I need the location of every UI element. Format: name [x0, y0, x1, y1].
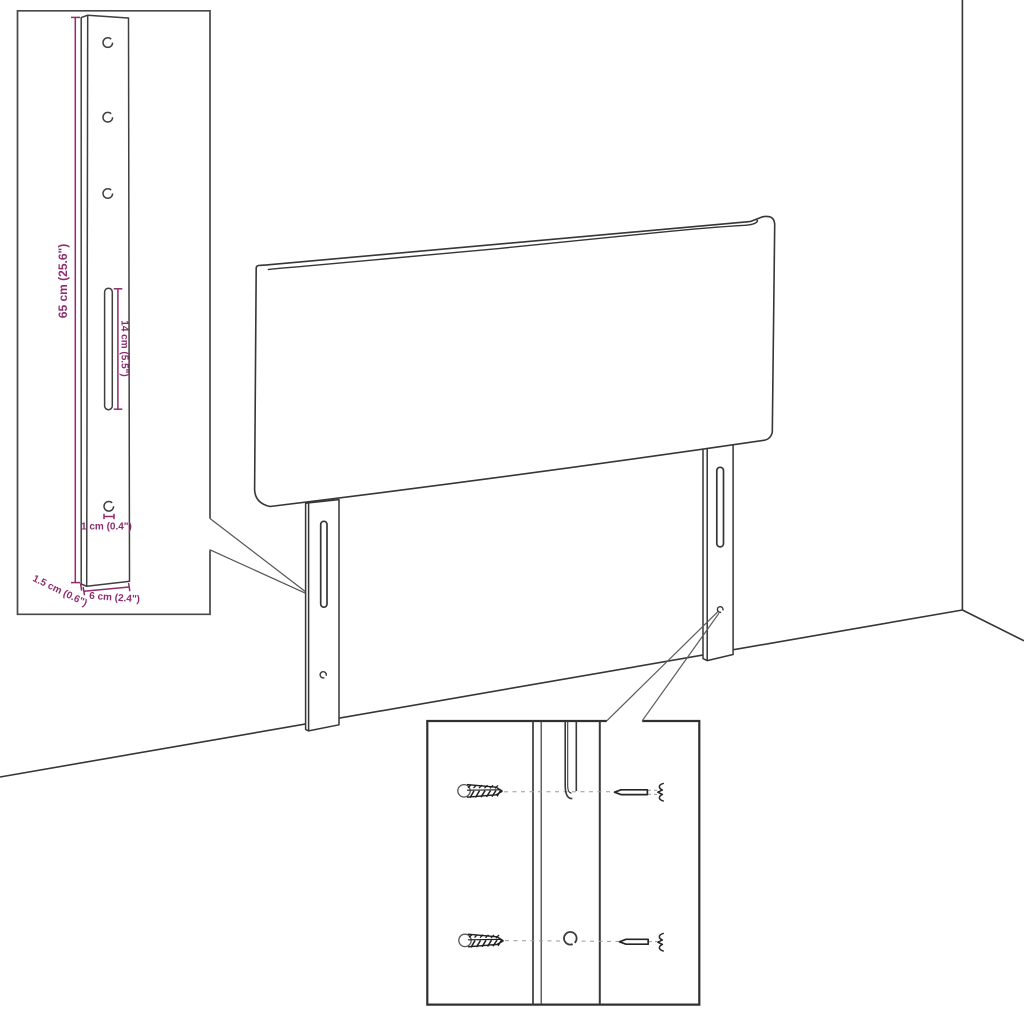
svg-text:1 cm (0.4"): 1 cm (0.4") — [81, 522, 132, 533]
svg-text:65 cm (25.6"): 65 cm (25.6") — [56, 244, 70, 318]
svg-text:14 cm (5.5"): 14 cm (5.5") — [119, 320, 130, 376]
